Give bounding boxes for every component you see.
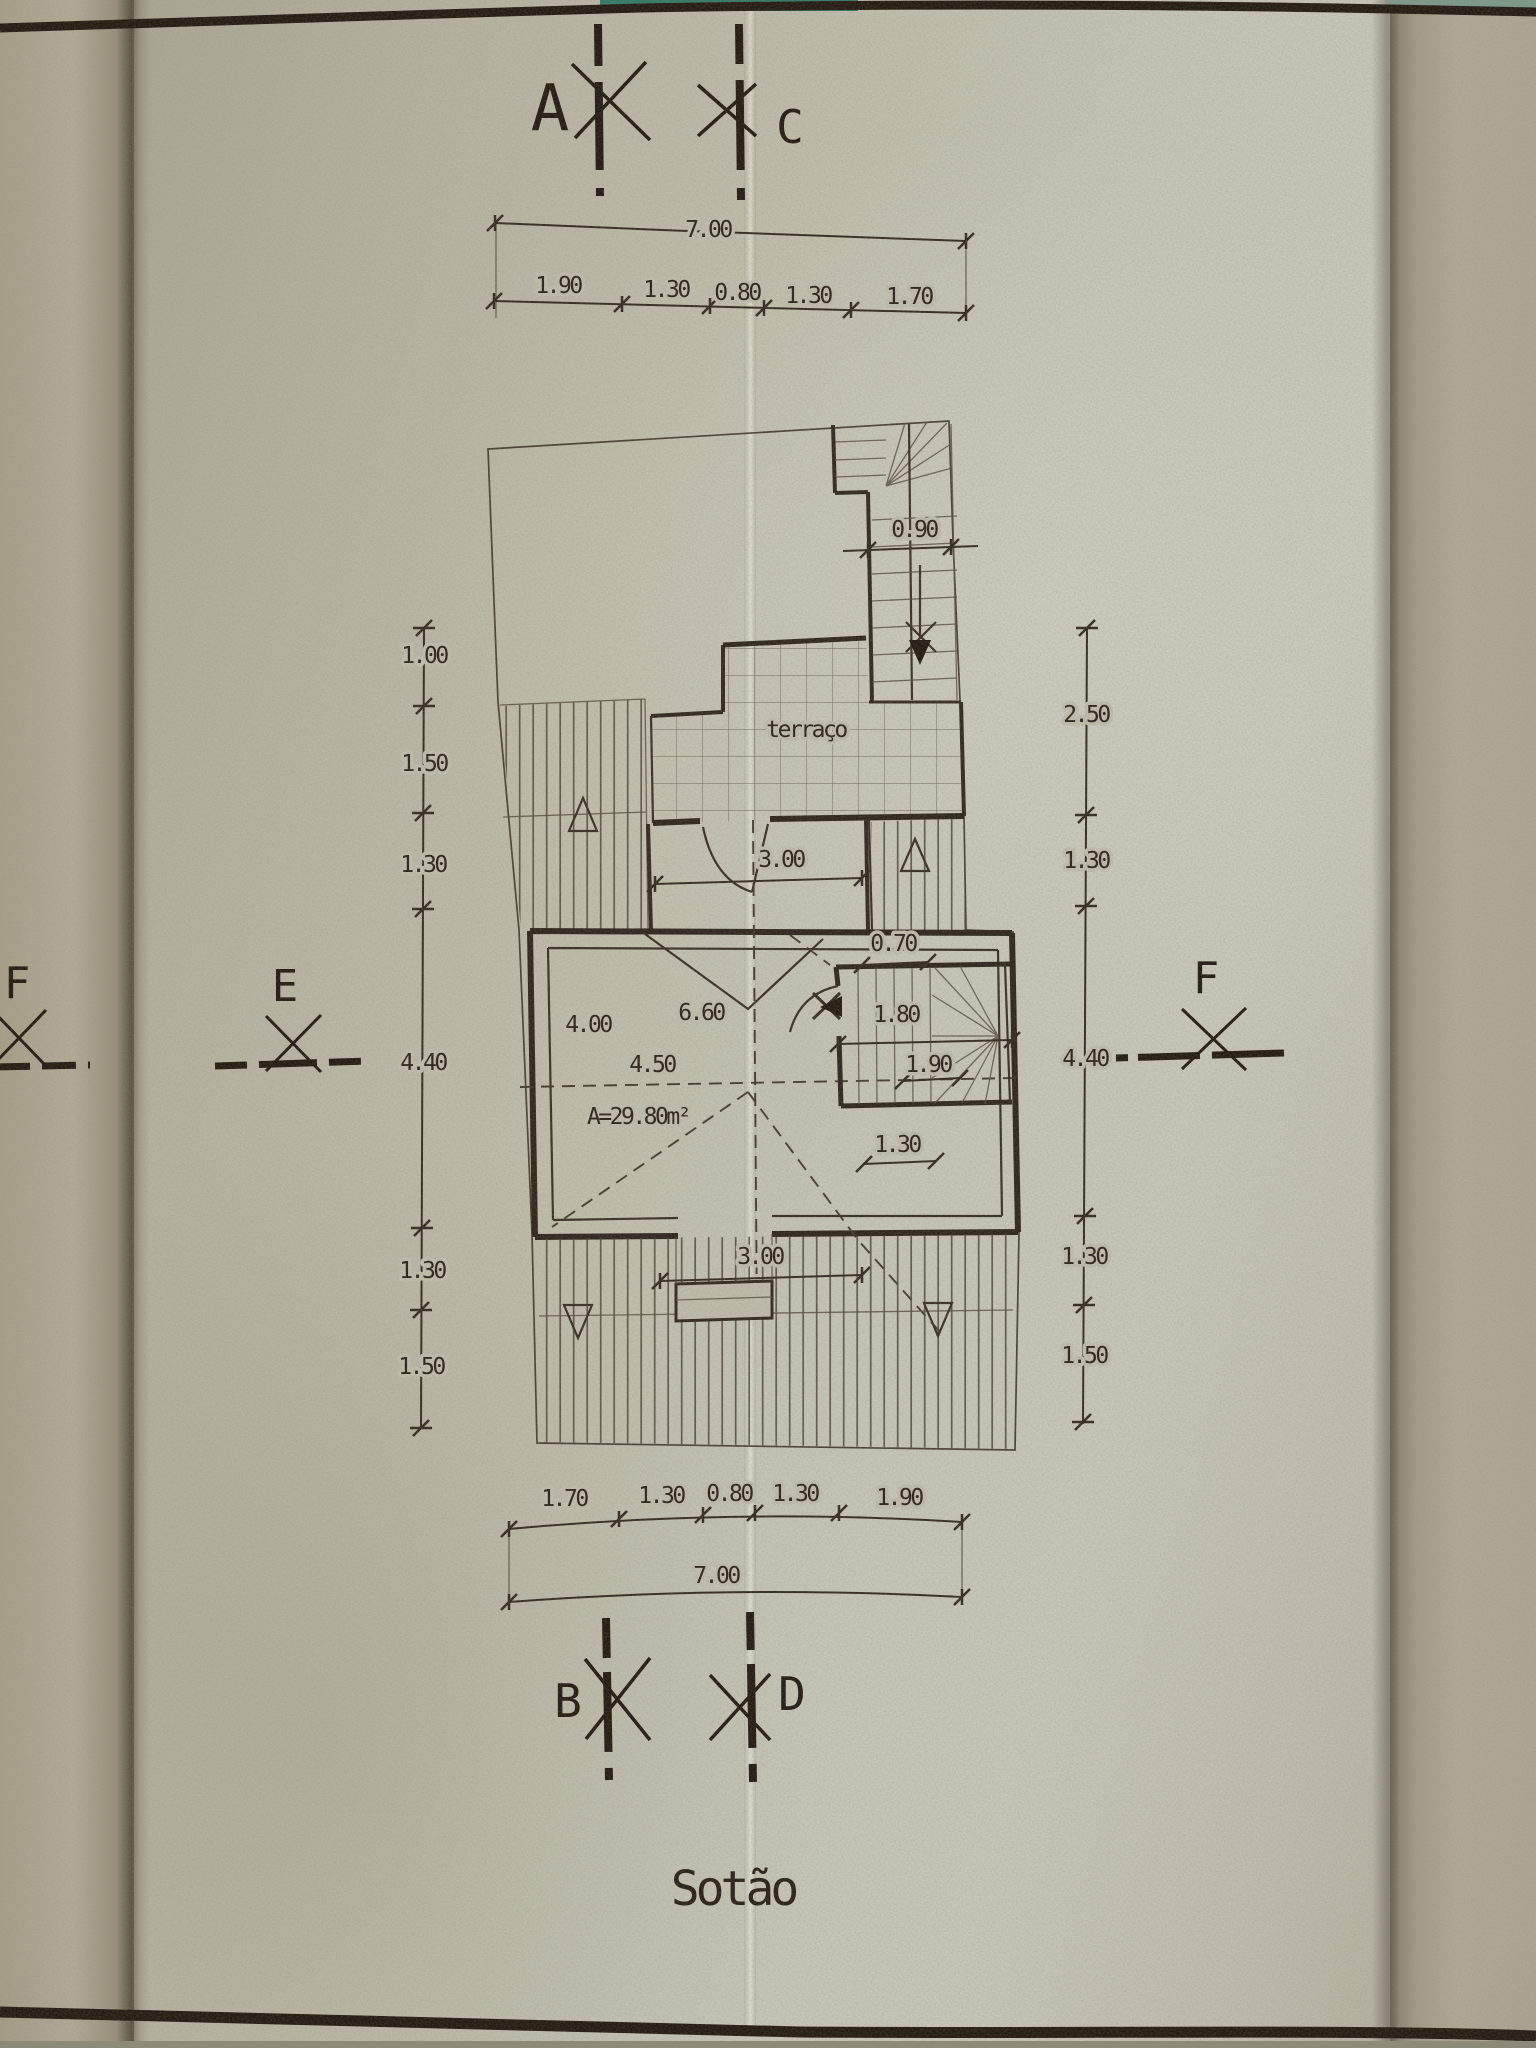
photographed-blueprint: A C 7.00 1.90 1.30 0.80 1.30 1.70 — [0, 0, 1536, 2048]
photo-vignette — [0, 0, 1536, 2048]
